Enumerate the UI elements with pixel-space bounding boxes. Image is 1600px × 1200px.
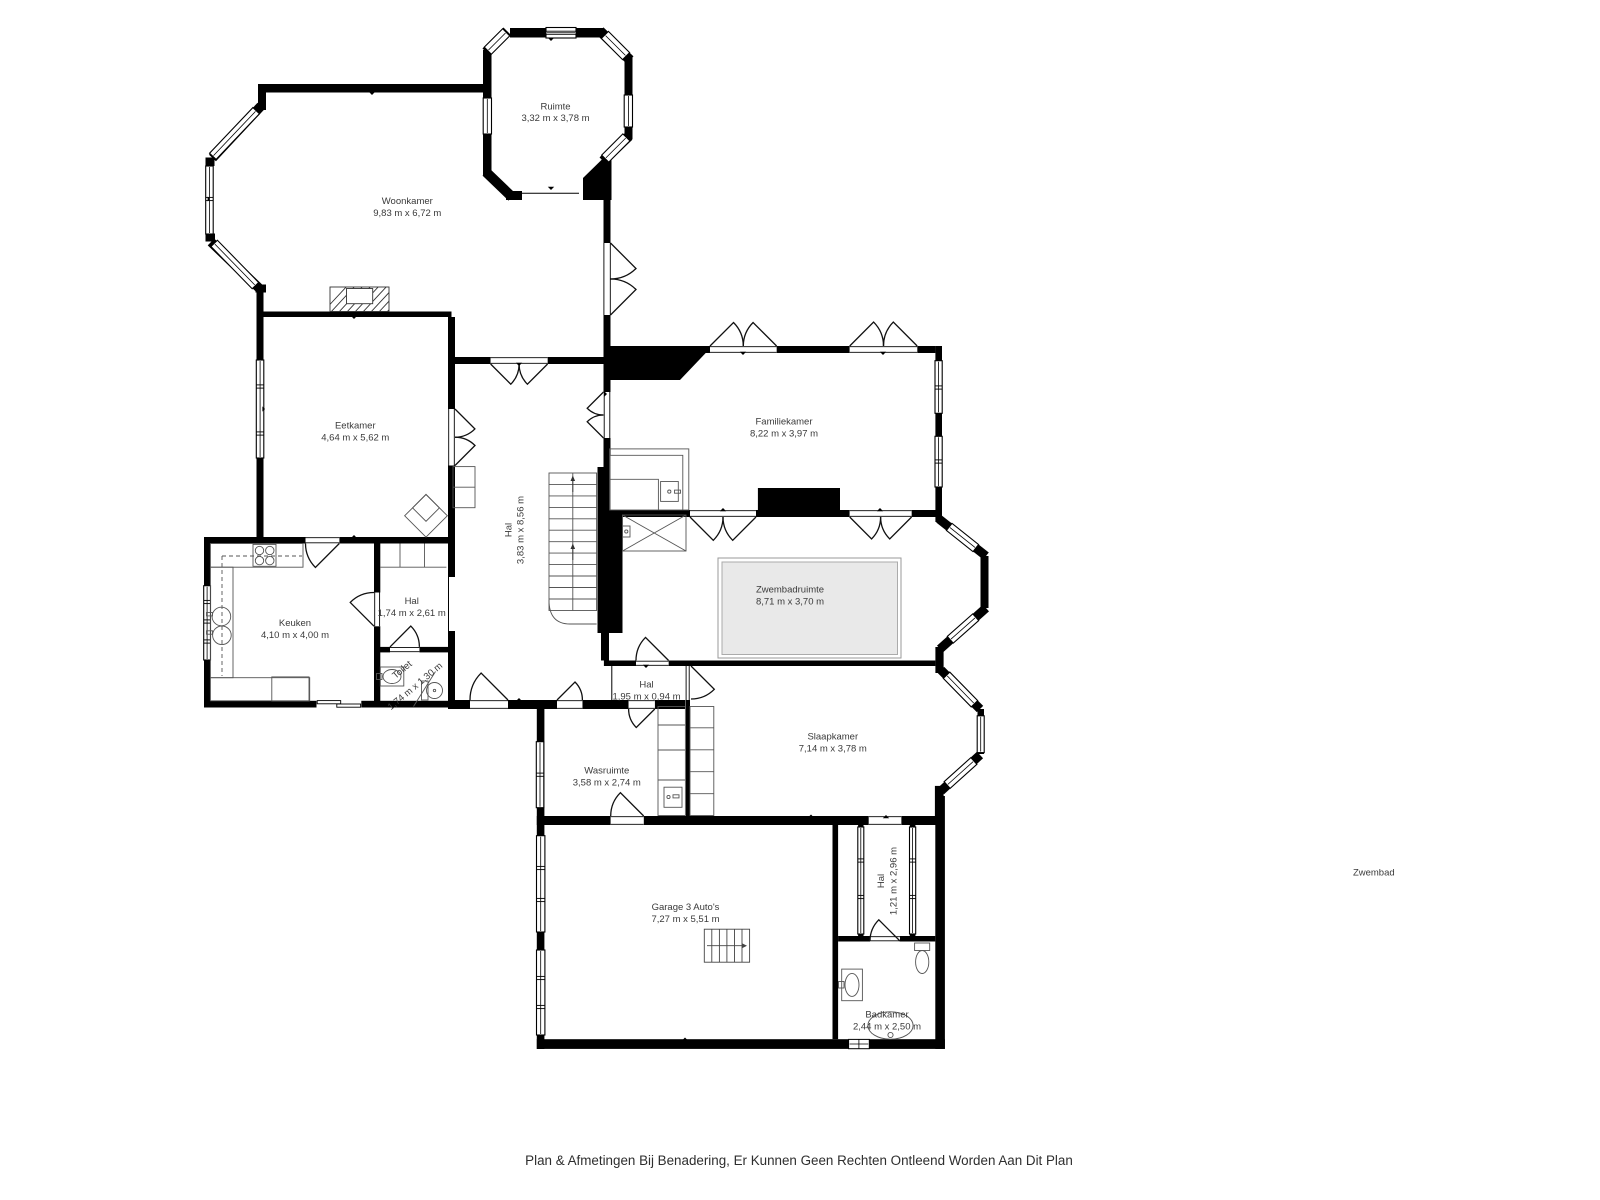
svg-text:Ruimte: Ruimte — [540, 101, 570, 112]
svg-text:Hal: Hal — [639, 679, 653, 690]
svg-text:4,64 m x 5,62 m: 4,64 m x 5,62 m — [321, 433, 389, 444]
svg-text:3,83 m x 8,56 m: 3,83 m x 8,56 m — [516, 496, 527, 564]
svg-text:8,71 m x 3,70 m: 8,71 m x 3,70 m — [756, 596, 824, 607]
svg-text:3,32 m x 3,78 m: 3,32 m x 3,78 m — [521, 113, 589, 124]
svg-text:4,10 m x 4,00 m: 4,10 m x 4,00 m — [261, 630, 329, 641]
svg-text:Zwembadruimte: Zwembadruimte — [756, 584, 824, 595]
svg-text:Familiekamer: Familiekamer — [755, 417, 812, 428]
svg-text:7,14 m x 3,78 m: 7,14 m x 3,78 m — [799, 744, 867, 755]
svg-text:Garage 3 Auto's: Garage 3 Auto's — [652, 902, 720, 913]
svg-text:8,22 m x 3,97 m: 8,22 m x 3,97 m — [750, 429, 818, 440]
svg-text:3,58 m x 2,74 m: 3,58 m x 2,74 m — [573, 777, 641, 788]
svg-text:1,74 m x 2,61 m: 1,74 m x 2,61 m — [378, 608, 446, 619]
svg-text:Woonkamer: Woonkamer — [382, 196, 433, 207]
svg-text:Keuken: Keuken — [279, 618, 311, 629]
svg-text:Eetkamer: Eetkamer — [335, 421, 376, 432]
svg-text:Hal: Hal — [405, 596, 419, 607]
svg-text:Badkamer: Badkamer — [865, 1010, 908, 1021]
svg-text:Slaapkamer: Slaapkamer — [807, 731, 858, 742]
svg-text:1,95 m x 0,94 m: 1,95 m x 0,94 m — [612, 691, 680, 702]
svg-text:9,83 m x 6,72 m: 9,83 m x 6,72 m — [373, 208, 441, 219]
svg-text:Wasruimte: Wasruimte — [584, 765, 629, 776]
svg-text:Hal: Hal — [504, 523, 515, 537]
svg-text:Zwembad: Zwembad — [1353, 868, 1395, 879]
svg-text:Hal: Hal — [876, 874, 887, 888]
svg-text:7,27 m x 5,51 m: 7,27 m x 5,51 m — [651, 914, 719, 925]
svg-text:2,44 m x 2,50 m: 2,44 m x 2,50 m — [853, 1022, 921, 1033]
svg-text:Plan & Afmetingen Bij Benaderi: Plan & Afmetingen Bij Benadering, Er Kun… — [525, 1153, 1073, 1168]
svg-text:1,21 m x 2,96 m: 1,21 m x 2,96 m — [889, 847, 900, 915]
